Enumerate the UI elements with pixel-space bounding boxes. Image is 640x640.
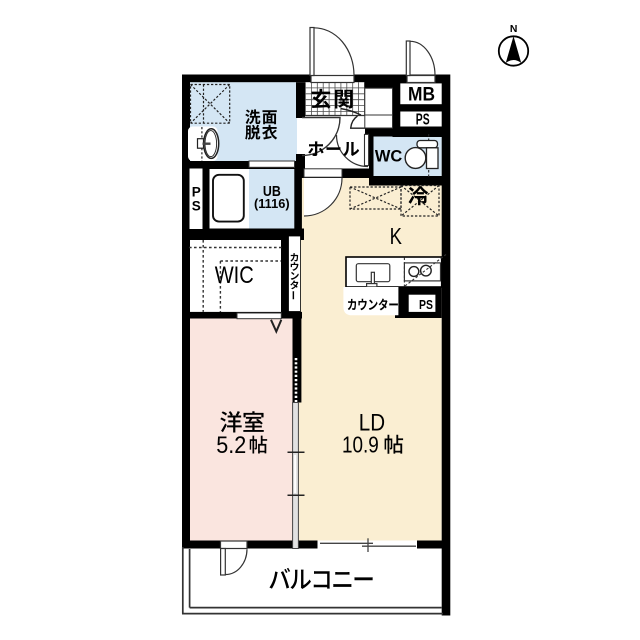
svg-text:(1116): (1116) bbox=[254, 196, 290, 211]
svg-text:PS: PS bbox=[419, 297, 433, 312]
svg-text:K: K bbox=[390, 223, 403, 249]
svg-text:PS: PS bbox=[416, 112, 430, 129]
svg-text:N: N bbox=[510, 24, 518, 35]
svg-text:5.2: 5.2 bbox=[216, 432, 246, 459]
svg-text:MB: MB bbox=[408, 84, 435, 106]
svg-text:10.9: 10.9 bbox=[342, 431, 379, 457]
svg-text:WC: WC bbox=[375, 148, 402, 166]
svg-text:S: S bbox=[192, 199, 201, 214]
svg-text:P: P bbox=[192, 185, 201, 200]
svg-text:WIC: WIC bbox=[215, 262, 254, 289]
